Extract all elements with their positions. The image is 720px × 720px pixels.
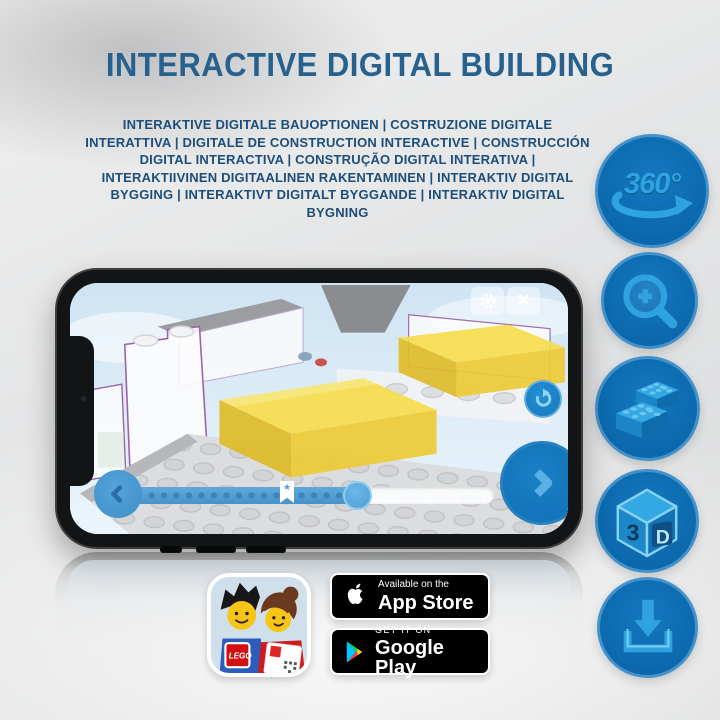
progress-handle[interactable] bbox=[343, 481, 372, 510]
3d-cube-icon: 3 D bbox=[610, 484, 684, 558]
google-play-tagline: GET IT ON bbox=[375, 626, 478, 635]
page-title: INTERACTIVE DIGITAL BUILDING bbox=[22, 46, 699, 84]
app-store-name: App Store bbox=[378, 593, 474, 613]
lego-app-icon[interactable]: LEGO bbox=[207, 573, 311, 677]
feature-3d-view: 3 D bbox=[595, 469, 699, 573]
app-store-badge[interactable]: Available on the App Store bbox=[330, 573, 490, 620]
progress-fill bbox=[132, 487, 356, 504]
previous-step-button[interactable] bbox=[94, 470, 142, 518]
google-play-name: Google Play bbox=[375, 638, 478, 678]
feature-360-rotation: 360° bbox=[595, 134, 709, 248]
feature-download bbox=[597, 577, 698, 678]
feature-zoom bbox=[601, 252, 698, 349]
download-icon bbox=[614, 594, 682, 662]
chevron-right-icon bbox=[525, 466, 559, 500]
google-play-logo-icon bbox=[342, 637, 366, 667]
cube-3-label: 3 bbox=[627, 519, 640, 545]
marketing-page: INTERACTIVE DIGITAL BUILDING INTERAKTIVE… bbox=[0, 0, 720, 720]
app-screen: ✕ ★ bbox=[70, 283, 568, 534]
close-button[interactable]: ✕ bbox=[507, 287, 540, 315]
phone-mockup: ✕ ★ bbox=[55, 268, 583, 549]
apple-logo-icon bbox=[342, 580, 369, 613]
phone-notch bbox=[68, 336, 94, 486]
close-icon: ✕ bbox=[516, 291, 530, 311]
lego-minifigures-art: LEGO bbox=[211, 577, 307, 673]
google-play-badge[interactable]: GET IT ON Google Play bbox=[330, 628, 490, 675]
rotate-icon bbox=[532, 388, 554, 410]
magnifier-plus-icon bbox=[617, 268, 683, 334]
rotate-model-button[interactable] bbox=[524, 380, 562, 418]
cube-d-label: D bbox=[656, 526, 670, 548]
app-store-tagline: Available on the bbox=[378, 580, 474, 590]
gear-icon bbox=[478, 291, 498, 311]
multilingual-subtitle: INTERAKTIVE DIGITALE BAUOPTIONEN | COSTR… bbox=[85, 116, 590, 221]
step-progress-bar[interactable]: ★ bbox=[132, 487, 494, 504]
settings-button[interactable] bbox=[471, 287, 504, 315]
phone-reflection bbox=[55, 552, 583, 667]
feature-bricks bbox=[595, 356, 700, 461]
lego-brick-icon bbox=[610, 371, 686, 447]
rotation-arrow-icon bbox=[609, 189, 695, 221]
chevron-left-icon bbox=[107, 483, 129, 505]
lego-logo-text: LEGO bbox=[229, 652, 253, 661]
